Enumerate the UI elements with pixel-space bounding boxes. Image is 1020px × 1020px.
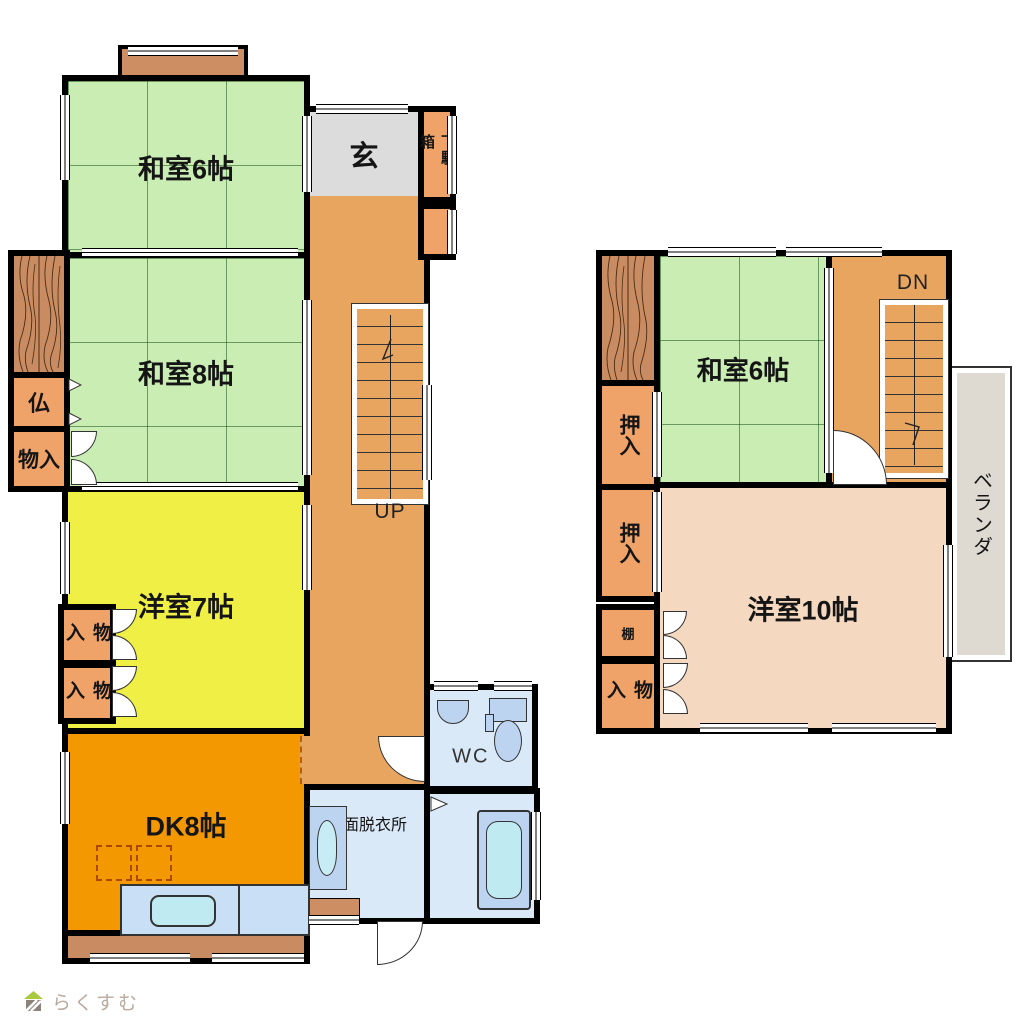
room-genkan-1f: 玄 [304, 106, 424, 198]
washbasin-icon [309, 806, 347, 890]
window [316, 104, 408, 114]
room-label-oshiire-b: 押入 [613, 522, 643, 564]
stairs-up-arrow-icon [371, 337, 401, 371]
window [128, 46, 238, 56]
room-washitsu8-1f: 和室8帖 [62, 252, 310, 492]
logo-text: らくすむ [52, 988, 140, 1015]
room-label-monoiri-s2: 物入 [60, 681, 114, 706]
room-label-wc: WC [452, 746, 489, 769]
room-monoiri-small1-1f: 物入 [58, 604, 116, 666]
room-monoiri-left-1f: 物入 [8, 426, 70, 492]
sliding-door-opening [652, 492, 662, 592]
room-label-washitsu8-1f: 和室8帖 [138, 353, 234, 392]
room-tana-2f: 棚 [596, 604, 660, 662]
logo: らくすむ [22, 988, 140, 1015]
window [60, 752, 70, 824]
stairs-down-arrow-icon [897, 417, 927, 449]
wood-grain-icon [14, 256, 64, 372]
room-monoiri-small2-1f: 物入 [58, 662, 116, 724]
room-label-monoiri-left: 物入 [18, 444, 60, 474]
sliding-door-opening [302, 505, 312, 590]
sliding-door-opening [652, 392, 662, 477]
window [60, 522, 70, 594]
toilet-bowl-icon [494, 720, 522, 762]
room-label-oshiire-a: 押入 [613, 414, 643, 456]
room-label-monoiri-2f: 物入 [601, 680, 655, 712]
window [309, 915, 359, 925]
door-swing-marker [68, 378, 82, 392]
room-label-washitsu6-1f: 和室6帖 [138, 147, 234, 186]
room-label-monoiri-s1: 物入 [60, 623, 114, 648]
sliding-door-opening [302, 116, 312, 192]
window [90, 953, 190, 963]
logo-house-icon [22, 990, 45, 1013]
room-yoshitsu10-2f: 洋室10帖 [654, 482, 952, 734]
stairs-up-label: UP [374, 500, 405, 524]
stairs-2f [880, 300, 948, 478]
room-label-yoshitsu7-1f: 洋室7帖 [138, 586, 234, 625]
open-boundary-dashed [300, 736, 314, 784]
window [447, 116, 457, 194]
stairs-1f [352, 304, 428, 504]
window [494, 681, 532, 691]
window [60, 95, 70, 180]
window [434, 681, 478, 691]
room-monoiri-2f: 物入 [596, 658, 660, 734]
kitchen-counter [120, 884, 310, 936]
stove-symbol-icon [96, 845, 132, 881]
room-butsudan-1f: 仏 [8, 372, 70, 432]
room-label-tana: 棚 [621, 624, 634, 643]
stairs-dn-label: DN [897, 271, 929, 295]
room-label-genkan: 玄 [349, 133, 378, 175]
window [700, 723, 808, 733]
floor-plan: 和室6帖 和室8帖 洋室7帖 DK8帖 玄 下駄箱 仏 [0, 0, 1020, 1020]
door-swing-marker [430, 796, 448, 812]
bathtub-icon [477, 810, 531, 910]
window [786, 247, 882, 257]
window [668, 247, 776, 257]
door-arc-exterior [377, 921, 423, 965]
room-label-dk-1f: DK8帖 [145, 805, 226, 844]
room-label-washitsu6-2f: 和室6帖 [697, 351, 789, 388]
toilet-tank-icon [489, 698, 527, 722]
tokonoma-wood-2f [596, 250, 660, 386]
room-washitsu6-2f: 和室6帖 [654, 250, 832, 488]
toilet-flush-icon [485, 714, 494, 732]
window [422, 385, 432, 480]
room-label-butsudan: 仏 [28, 386, 50, 418]
window [832, 723, 936, 733]
room-washitsu6-1f: 和室6帖 [62, 75, 310, 258]
room-label-veranda: ベランダ [967, 470, 996, 558]
tokonoma-wood-1f [8, 250, 70, 378]
room-label-yoshitsu10: 洋室10帖 [747, 589, 858, 628]
window [531, 812, 541, 900]
sliding-door-opening [302, 300, 312, 475]
window [447, 210, 457, 254]
room-oshiire-b-2f: 押入 [596, 484, 660, 602]
sliding-door-opening [82, 248, 298, 257]
stove-symbol-icon [136, 845, 172, 881]
room-oshiire-a-2f: 押入 [596, 380, 660, 490]
room-veranda-2f: ベランダ [950, 366, 1012, 662]
window [212, 953, 304, 963]
door-swing-marker [68, 412, 82, 426]
wood-grain-icon [602, 256, 654, 380]
kitchen-sink-icon [150, 895, 216, 927]
sliding-door-opening [82, 482, 298, 491]
window [943, 545, 953, 657]
